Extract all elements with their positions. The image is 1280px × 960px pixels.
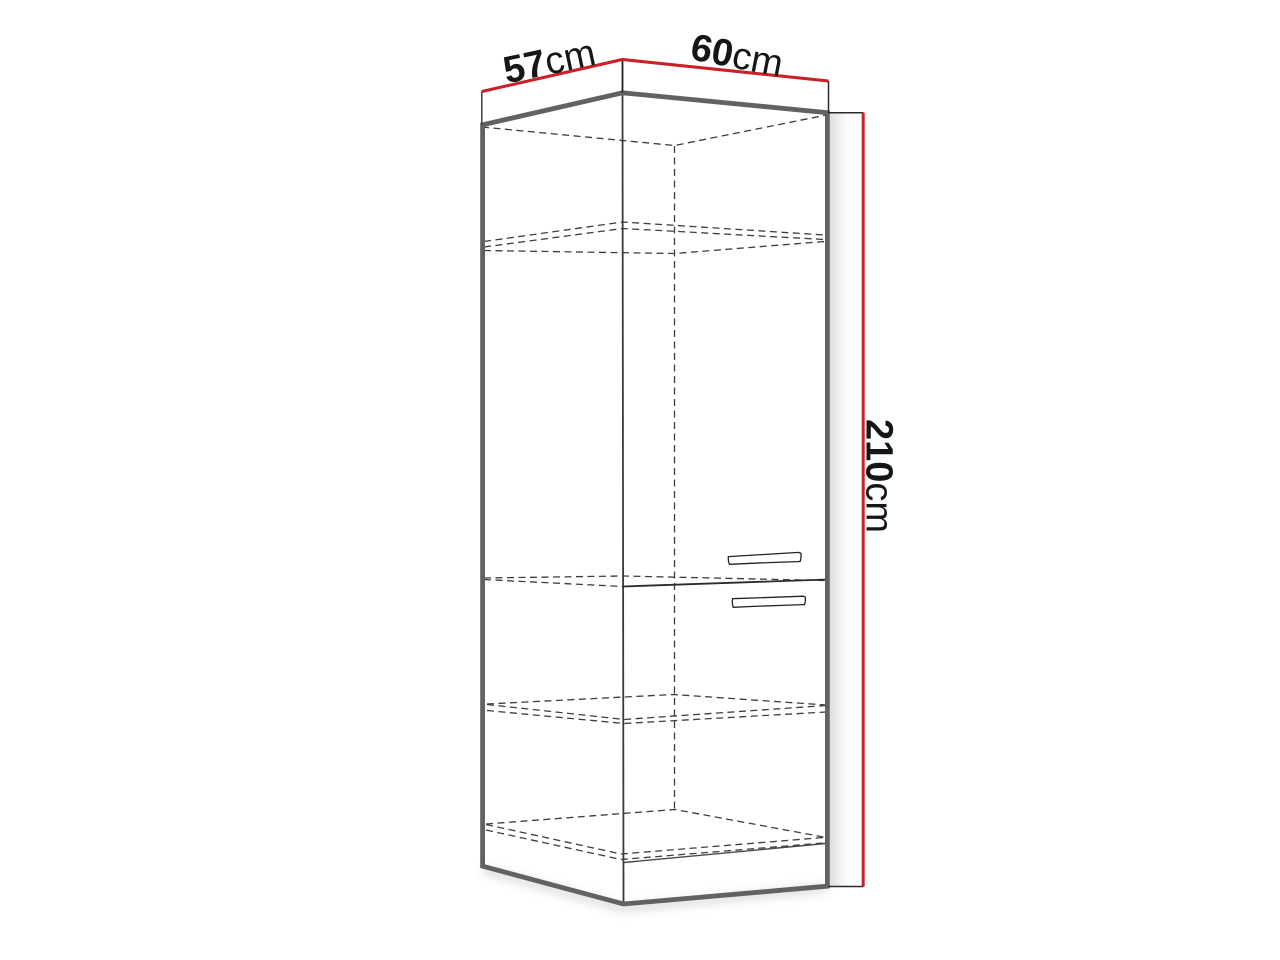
svg-text:210cm: 210cm <box>858 419 900 533</box>
